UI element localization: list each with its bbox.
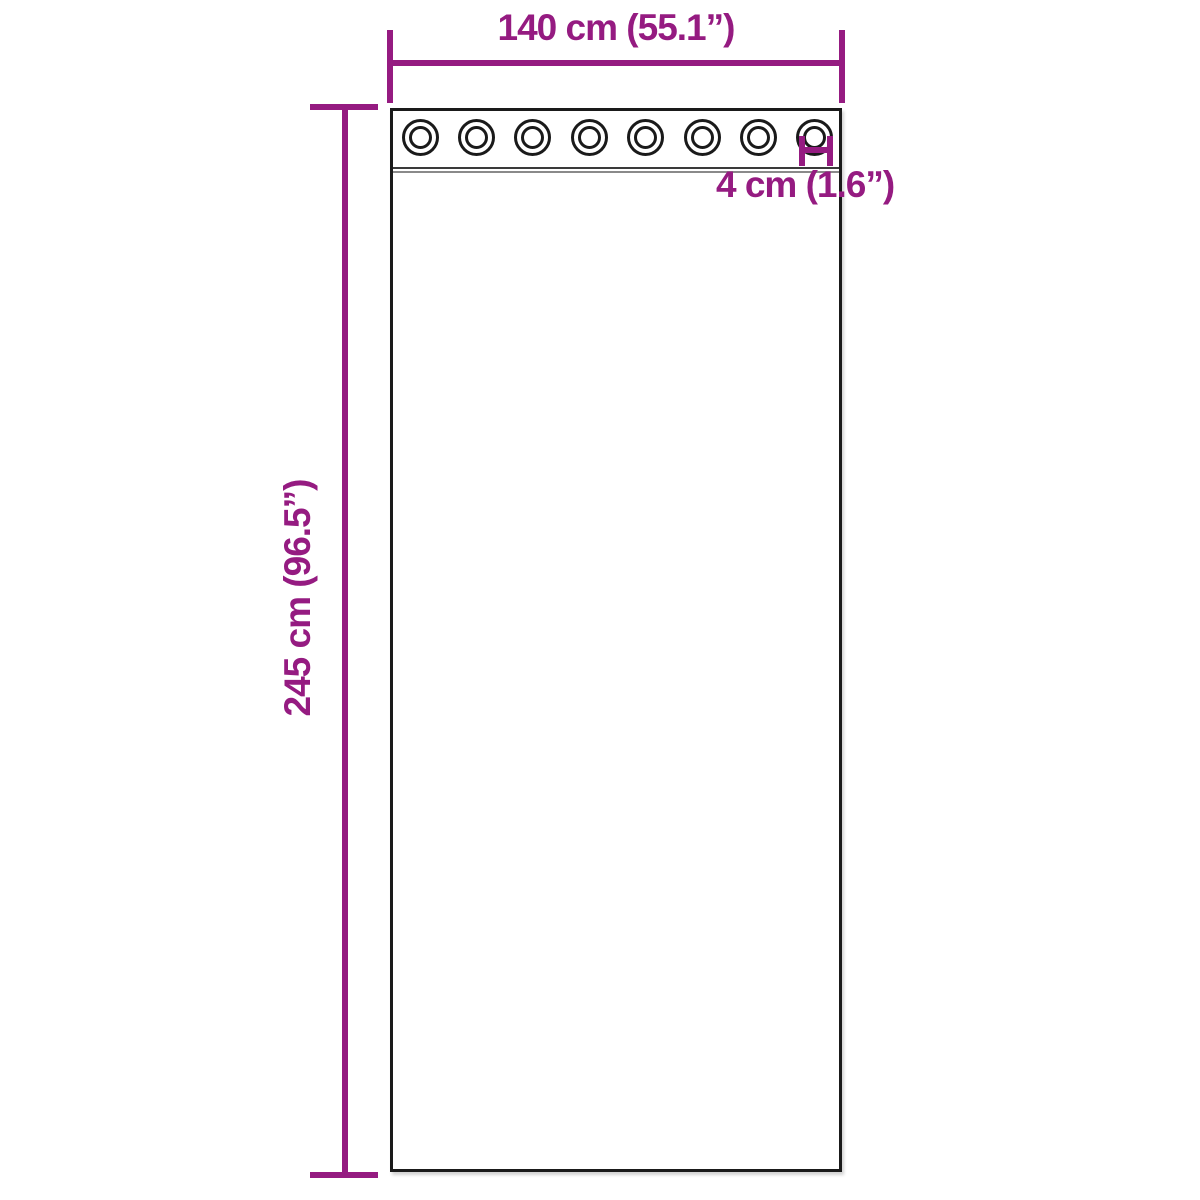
height-dimension-label: 245 cm (96.5”) bbox=[276, 458, 320, 738]
grommet-hole bbox=[691, 126, 714, 149]
grommet-icon bbox=[514, 119, 551, 156]
grommet-dimension-bar bbox=[799, 147, 833, 153]
grommet-icon bbox=[740, 119, 777, 156]
grommet-dimension-label: 4 cm (1.6”) bbox=[716, 163, 894, 207]
height-dimension-tick-top bbox=[310, 104, 378, 110]
height-dimension-line bbox=[342, 106, 348, 1178]
grommet-hole bbox=[409, 126, 432, 149]
curtain-panel bbox=[390, 108, 842, 1172]
grommet-icon bbox=[627, 119, 664, 156]
grommet-icon bbox=[571, 119, 608, 156]
diagram-canvas: 140 cm (55.1”) 245 cm (96.5”) 4 cm (1.6”… bbox=[0, 0, 1200, 1200]
grommet-hole bbox=[747, 126, 770, 149]
grommet-icon bbox=[402, 119, 439, 156]
height-dimension-tick-bottom bbox=[310, 1172, 378, 1178]
grommet-hole bbox=[465, 126, 488, 149]
grommet-hole bbox=[578, 126, 601, 149]
grommet-icon bbox=[458, 119, 495, 156]
width-dimension-line bbox=[390, 60, 842, 66]
grommet-hole bbox=[521, 126, 544, 149]
grommet-icon bbox=[684, 119, 721, 156]
grommet-hole bbox=[803, 126, 826, 149]
grommet-hole bbox=[634, 126, 657, 149]
width-dimension-label: 140 cm (55.1”) bbox=[390, 6, 842, 50]
